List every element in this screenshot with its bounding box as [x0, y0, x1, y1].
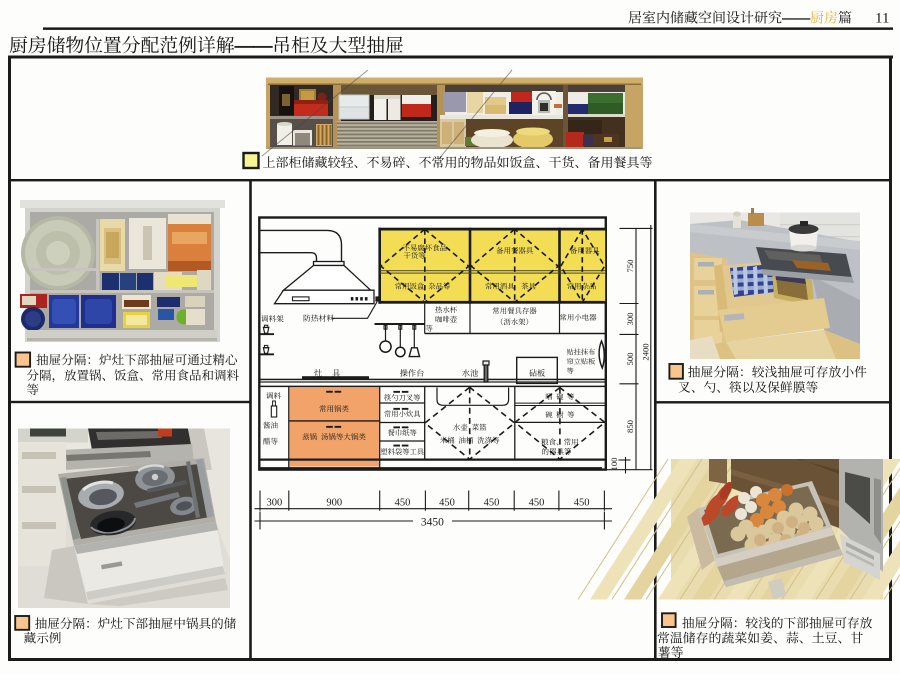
svg-text:300: 300	[267, 498, 283, 509]
svg-text:450: 450	[395, 498, 411, 509]
svg-text:11: 11	[875, 11, 889, 27]
svg-text:450: 450	[484, 498, 500, 509]
svg-text:750: 750	[625, 260, 635, 273]
svg-text:2400: 2400	[640, 343, 650, 360]
svg-text:900: 900	[326, 498, 342, 509]
svg-text:850: 850	[625, 420, 635, 433]
svg-text:450: 450	[529, 498, 545, 509]
svg-text:450: 450	[439, 498, 455, 509]
svg-text:500: 500	[625, 353, 635, 366]
svg-text:300: 300	[625, 313, 635, 326]
svg-text:3450: 3450	[421, 516, 444, 528]
svg-text:100: 100	[609, 458, 619, 471]
svg-text:450: 450	[574, 498, 590, 509]
